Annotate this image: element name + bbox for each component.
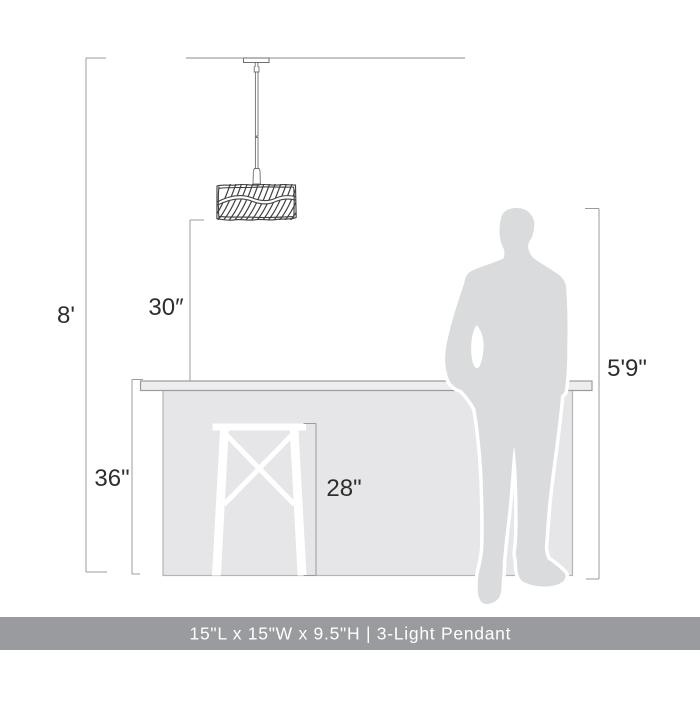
svg-text:36": 36" (94, 465, 129, 492)
svg-text:30″: 30″ (148, 294, 184, 321)
svg-text:28": 28" (326, 475, 361, 502)
svg-text:5'9": 5'9" (607, 355, 647, 382)
svg-text:15"L x 15"W x 9.5"H | 3-Light: 15"L x 15"W x 9.5"H | 3-Light Pendant (190, 624, 511, 644)
svg-text:8': 8' (57, 302, 75, 329)
